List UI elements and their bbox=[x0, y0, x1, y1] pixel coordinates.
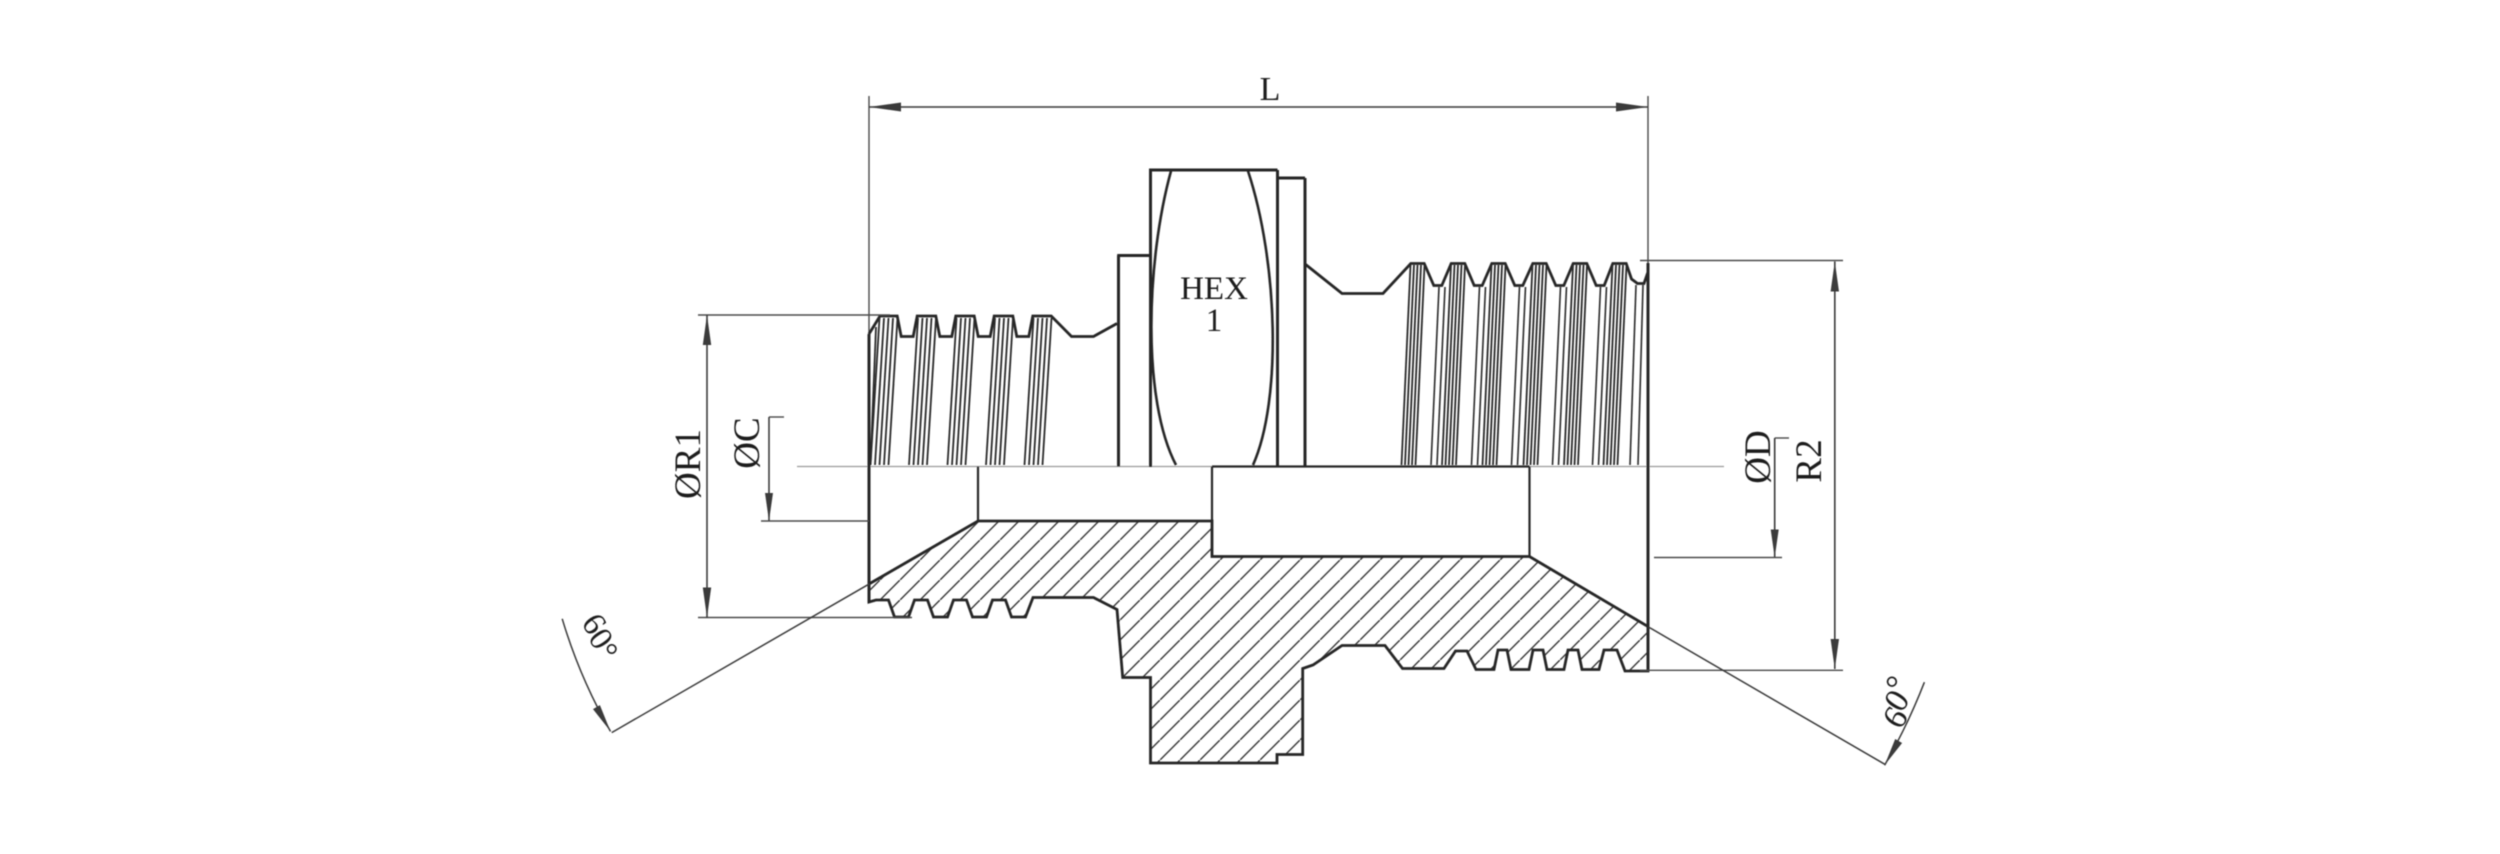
svg-text:ØC: ØC bbox=[727, 417, 768, 468]
svg-text:HEX: HEX bbox=[1180, 271, 1248, 307]
svg-text:ØR1: ØR1 bbox=[668, 429, 709, 499]
svg-text:1: 1 bbox=[1206, 303, 1223, 339]
svg-text:L: L bbox=[1260, 71, 1281, 108]
svg-text:R2: R2 bbox=[1789, 439, 1830, 482]
svg-text:ØD: ØD bbox=[1738, 430, 1779, 483]
